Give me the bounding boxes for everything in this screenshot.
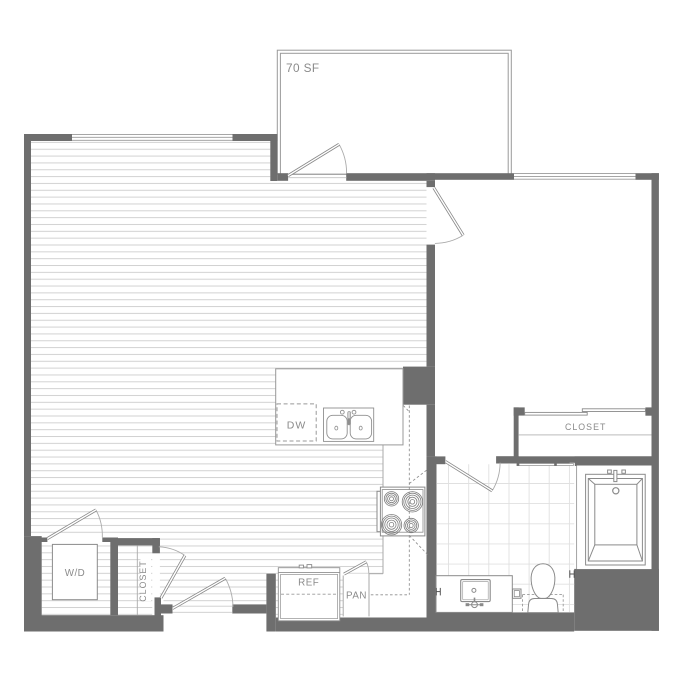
svg-text:70 SF: 70 SF	[286, 61, 319, 75]
svg-text:W/D: W/D	[65, 568, 86, 579]
svg-text:CLOSET: CLOSET	[138, 560, 148, 602]
svg-text:CLOSET: CLOSET	[565, 422, 607, 432]
svg-text:REF: REF	[298, 577, 319, 588]
svg-text:PAN: PAN	[346, 591, 367, 602]
svg-text:DW: DW	[287, 419, 307, 431]
